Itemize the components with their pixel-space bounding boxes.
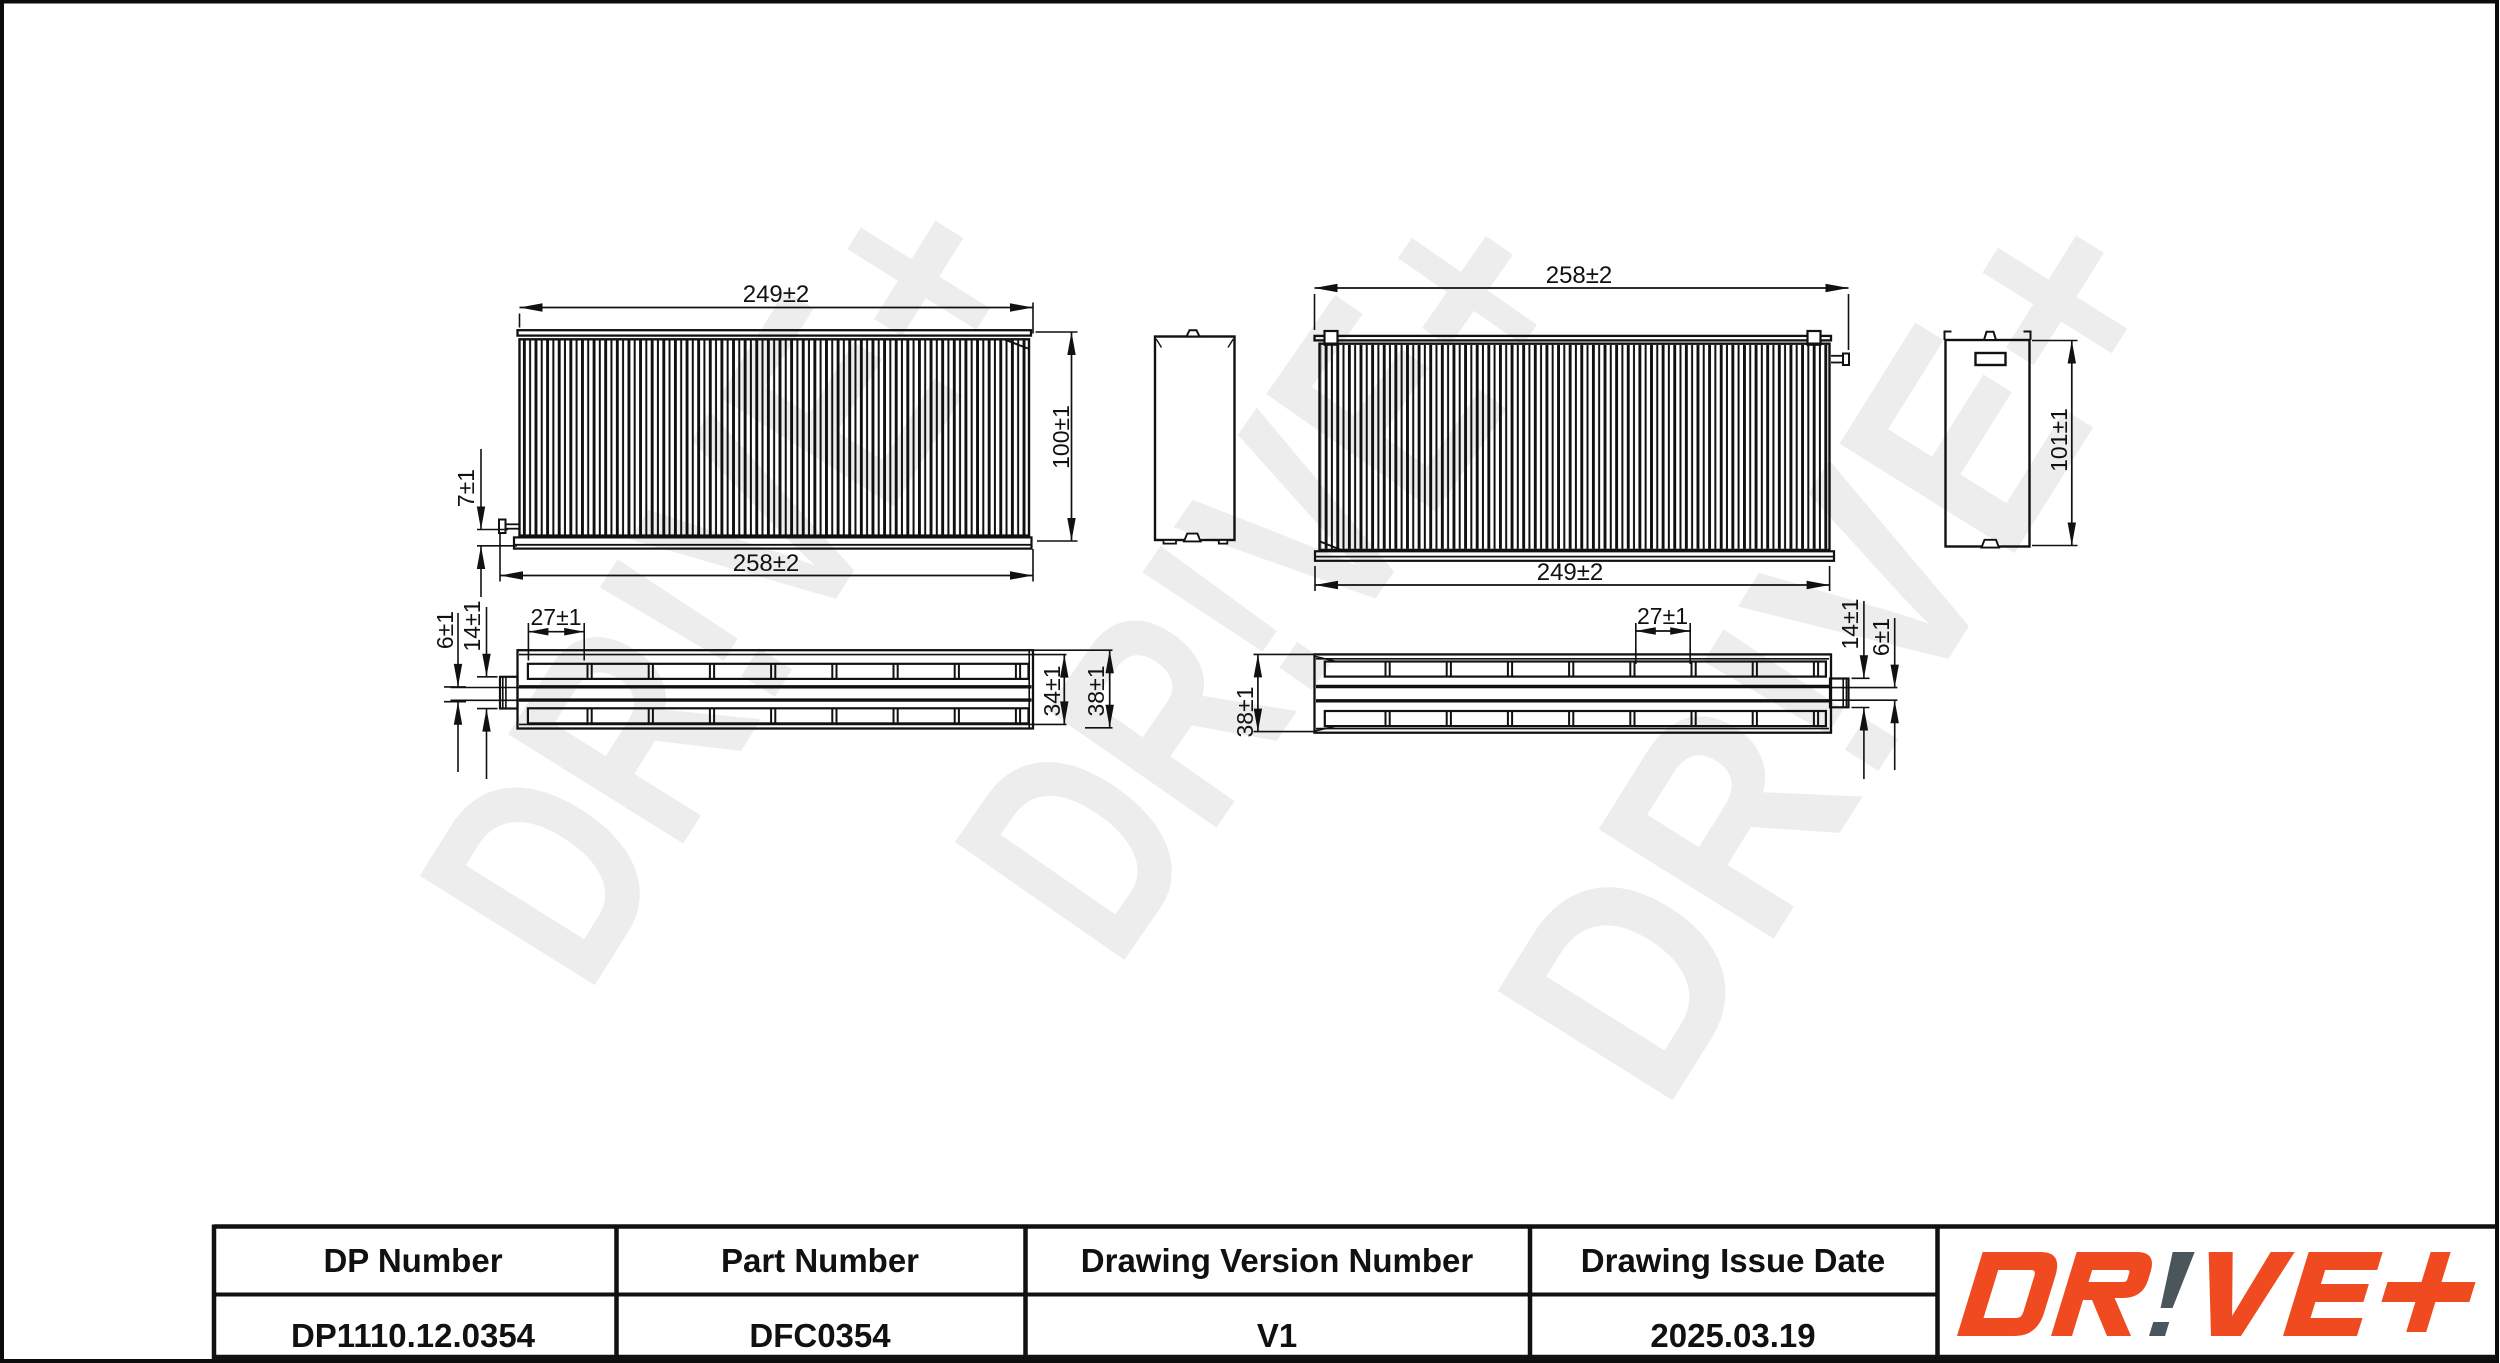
svg-text:Drawing Issue Date: Drawing Issue Date [1581,1242,1885,1279]
svg-text:249±2: 249±2 [743,281,810,308]
svg-text:38±1: 38±1 [1232,687,1258,738]
svg-text:DP1110.12.0354: DP1110.12.0354 [291,1317,536,1354]
svg-text:6±1: 6±1 [1868,618,1894,656]
svg-text:V1: V1 [1257,1317,1297,1354]
svg-text:Drawing Version Number: Drawing Version Number [1081,1242,1474,1279]
svg-text:2025.03.19: 2025.03.19 [1650,1317,1815,1354]
svg-text:14±1: 14±1 [1837,599,1863,650]
svg-text:DFC0354: DFC0354 [749,1317,891,1354]
svg-text:6±1: 6±1 [432,611,458,649]
svg-text:DR!VE+: DR!VE+ [357,131,1093,1032]
svg-text:101±1: 101±1 [2046,408,2072,472]
svg-text:27±1: 27±1 [531,604,582,630]
svg-text:38±1: 38±1 [1083,666,1109,717]
svg-text:14±1: 14±1 [459,601,485,652]
svg-text:34±1: 34±1 [1039,666,1065,717]
svg-text:27±1: 27±1 [1637,603,1688,629]
svg-text:100±1: 100±1 [1048,405,1074,469]
svg-text:7±1: 7±1 [453,469,479,507]
svg-text:DP Number: DP Number [323,1242,502,1279]
svg-text:Part Number: Part Number [721,1242,919,1279]
svg-text:258±2: 258±2 [733,550,800,577]
svg-text:249±2: 249±2 [1537,559,1604,586]
svg-text:258±2: 258±2 [1546,262,1613,289]
